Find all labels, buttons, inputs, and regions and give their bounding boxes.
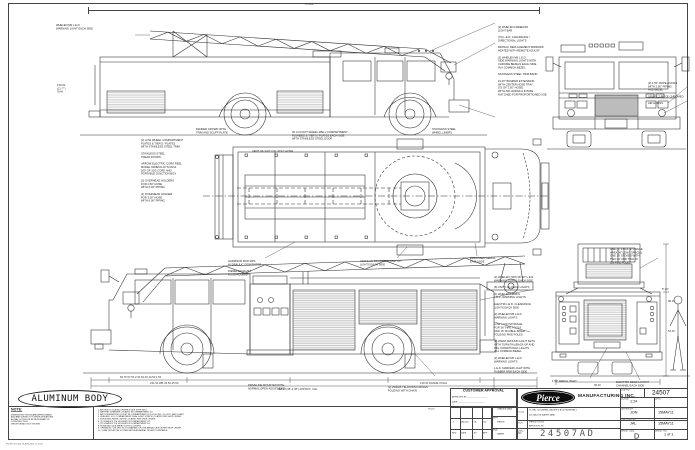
mirror — [101, 270, 109, 282]
dim-rear-width: 96.00 — [594, 384, 612, 387]
rev-header-rev: REV — [452, 432, 459, 434]
air-horn — [659, 110, 666, 117]
dim-overall-length: 458.38 (38'-2.38") APPROX. OAL — [230, 388, 365, 391]
date-label: DATE — [655, 398, 661, 400]
rear-body — [552, 292, 662, 374]
sheet-size-value: D — [634, 432, 639, 440]
dim-rear-height2: 52.25 — [668, 330, 686, 333]
chassis-mdl-value: SABER — [497, 433, 517, 435]
cab — [91, 269, 250, 354]
aerial-inlet — [594, 342, 620, 348]
numbered-notes: 1. AIR INLET LOCATED DRIVER'S SIDE STEP … — [98, 409, 431, 432]
callout-group: HARRISON 6KW MPS HYDRAULIC GENERATOR DIE… — [228, 260, 273, 277]
cab — [330, 48, 469, 117]
drawing-title-line1: 75' HAL TCO AERIAL LADDER & BODY ASSEMBL… — [529, 409, 624, 411]
mud-flap — [405, 354, 415, 368]
crew-window — [213, 280, 245, 304]
front-bumper — [91, 330, 111, 344]
sheet-size-label: SHEET SIZE — [621, 430, 634, 432]
callout-group: STAINLESS STEEL WHEEL LINERS — [432, 128, 473, 135]
rev-header-app: APP — [483, 432, 490, 434]
body-plan — [215, 147, 485, 247]
job-no-label: JOB NO. — [621, 389, 630, 391]
rollup-door — [421, 290, 477, 350]
callout-group: 30 CU FOOT WHEEL WELL COMPARTMENT PLUMBE… — [292, 131, 360, 141]
front-bumper — [449, 100, 469, 112]
rev-entry-by: JA — [474, 421, 481, 423]
rollup-door — [293, 290, 355, 350]
callout-group: (2) 1.50" ROPE HOOKS WITH 2.50" PIPING A… — [648, 82, 689, 106]
tip-monitor — [441, 62, 456, 72]
mirror-plan — [533, 139, 541, 145]
sheet-no-label: SHEET NO. — [655, 430, 667, 432]
dim-chain-row2: 231.50 WB 34.50 45.50 — [150, 382, 366, 385]
rev-header-date: DATE — [461, 432, 471, 434]
approved-by-line: APPROVED BY: _________________ — [452, 396, 513, 398]
callout-group: (2) 2500LB TIE-DOWN D-RINGS FOLDING WITH… — [388, 386, 442, 393]
rear-step — [89, 111, 100, 117]
rollup-door — [359, 290, 417, 324]
front-wheels — [567, 131, 666, 147]
light-bars — [561, 42, 643, 52]
drawing-title-line2: 500 GALLON WATER TANK — [529, 414, 624, 416]
drawn-by-value: JON — [630, 411, 637, 415]
rev-entry-app: 116 — [483, 421, 490, 423]
mirrors — [546, 57, 689, 71]
drawn-date-value: 15MAY11 — [658, 411, 674, 415]
scale-value: 1:24 — [630, 400, 637, 404]
front-wheel — [160, 325, 214, 373]
dim-rear-height: 98.25 — [668, 300, 686, 303]
compartment-door — [107, 91, 165, 113]
rear-wheel — [361, 325, 415, 373]
crew-window — [343, 61, 371, 81]
chassis-mfr-label: MFR — [493, 417, 498, 419]
chassis-header: CHASSIS DATA — [493, 408, 516, 410]
outrigger-pad — [397, 139, 423, 149]
job-no-value: 24507 — [652, 389, 670, 396]
drawing-sheet: 575.88 — [0, 0, 695, 450]
revision-table — [450, 407, 492, 440]
gauge — [258, 298, 263, 303]
chassis-mdl-label: MDL — [493, 429, 498, 431]
plot-file-note: Plot File Created 29-AUG-2011 11:15:28 — [6, 443, 108, 445]
approval-date-line: DATE: _______________________ — [452, 401, 513, 403]
checked-by-label: CHECKED BY — [621, 419, 636, 421]
scale-label: SCALE — [621, 398, 628, 400]
air-horn — [568, 110, 575, 117]
door-window — [175, 280, 209, 304]
pierce-logo: Pierce — [521, 390, 575, 405]
front-wheel — [384, 93, 436, 135]
door-window — [377, 61, 403, 81]
rear-tires — [612, 362, 632, 374]
turntable-pedestal — [313, 51, 341, 57]
windshield-left — [565, 62, 614, 89]
pump-module — [247, 276, 293, 355]
dwg-label: DWG NO. — [518, 430, 524, 435]
rev-header-by: BY — [474, 432, 481, 434]
side-elevation-top-view — [55, 5, 545, 145]
dim-chain-row1: 84.75 57.50 2.00 62.00 44.50 1.50 — [120, 376, 372, 379]
callout-group: ELECTRIC DEAD LAYOUT CHANNEL EACH SIDE — [616, 381, 657, 388]
front-window — [407, 61, 435, 81]
label-col-line — [527, 407, 528, 440]
aerial-ladder-stowed — [150, 31, 456, 85]
callout-group: FENDER CROWN WITH TRIM AND SCUFF PLATE — [196, 128, 241, 135]
rightcol-mid1 — [644, 388, 645, 397]
callout-group: 1.50" AERIAL INLET — [552, 380, 588, 383]
turntable-plan — [375, 139, 477, 255]
crosslay — [253, 276, 287, 284]
rev-entry-rev: 1 — [453, 421, 460, 423]
side-elevation-bottom-view — [75, 242, 555, 392]
callout-group: (2) WHELEN FREEDOM LIGHT BAR (70) L.E.D.… — [498, 26, 548, 97]
checked-by-value: JAL — [630, 422, 636, 426]
figure-height-label: 5'-10" — [662, 288, 680, 291]
gauge — [269, 298, 274, 303]
customer-approval-title: CUSTOMER APPROVAL — [452, 389, 515, 394]
rev-entry-date: 2AUG11 — [461, 421, 473, 423]
drawn-by-label: DRAWN BY — [621, 408, 633, 410]
cab-plan — [485, 139, 549, 255]
sheet-no-value: 1 of 1 — [664, 433, 673, 437]
rev-row-line2 — [450, 429, 492, 430]
callout-group: WHELEN M9 L.E.D. WARNING LIGHT EACH SIDE — [56, 24, 101, 31]
compartment-door — [277, 91, 323, 113]
drawing-number: 24507AD — [540, 429, 595, 439]
grille — [595, 95, 638, 116]
note-body: DIMENSIONS SHOWN ARE APPROXIMATE AND ARE… — [11, 414, 96, 425]
notes-ref: TK-116 — [428, 408, 448, 410]
for-line2: APPLETON, WI — [529, 425, 597, 427]
callout-group: ONE (1) STICK STORAGE AREA 36" LONG SPEC… — [610, 248, 651, 265]
dim-oah: 139.00 (11'-7") OAH — [57, 84, 84, 94]
rear-tires — [578, 362, 598, 374]
beacon — [135, 269, 147, 274]
checked-date-value: 15MAY11 — [658, 422, 674, 426]
chassis-mfr-value: PIERCE — [497, 421, 517, 423]
rightcol-mid2 — [654, 397, 655, 440]
callout-group: (2) LOW WHEEL COMPARTMENT PLATES & TIER'… — [141, 139, 195, 203]
rev-row-line1 — [450, 418, 492, 419]
callout-plan-vent: VENT OF 3.00" O.D. POLY HOSE — [252, 150, 315, 153]
rev-col-line1 — [460, 407, 461, 440]
rev-col-line3 — [482, 407, 483, 440]
title-label: TITLE — [518, 411, 524, 413]
beacon — [559, 297, 564, 302]
beacon — [647, 297, 652, 302]
front-window — [135, 280, 171, 304]
for-label: FOR — [518, 422, 523, 424]
rear-body — [89, 57, 330, 117]
rear-step — [552, 352, 662, 360]
tip-monitor — [123, 292, 139, 304]
tow-eye — [95, 344, 103, 349]
callout-group: EMBOSSED AERIAL EACH SIDE — [470, 257, 511, 264]
callout-group: UNIT'S AS TRUCK/ENG AND TOY LIGHTS EACH … — [360, 260, 419, 267]
rear-step-plan — [215, 155, 233, 239]
ladder-storage — [584, 300, 626, 340]
rear-body — [290, 278, 496, 354]
license-plate — [605, 119, 627, 128]
dim-frame-overhang: 130.50 FRAME OVHG — [420, 382, 474, 385]
note-title: NOTE: — [11, 408, 47, 413]
for-line1: PIERCE STOCK — [529, 421, 597, 423]
callout-group: (2) WHELEN 700S 3D 90° L.E.D. WARNING LI… — [494, 276, 548, 374]
rev-col-line2 — [472, 407, 473, 440]
